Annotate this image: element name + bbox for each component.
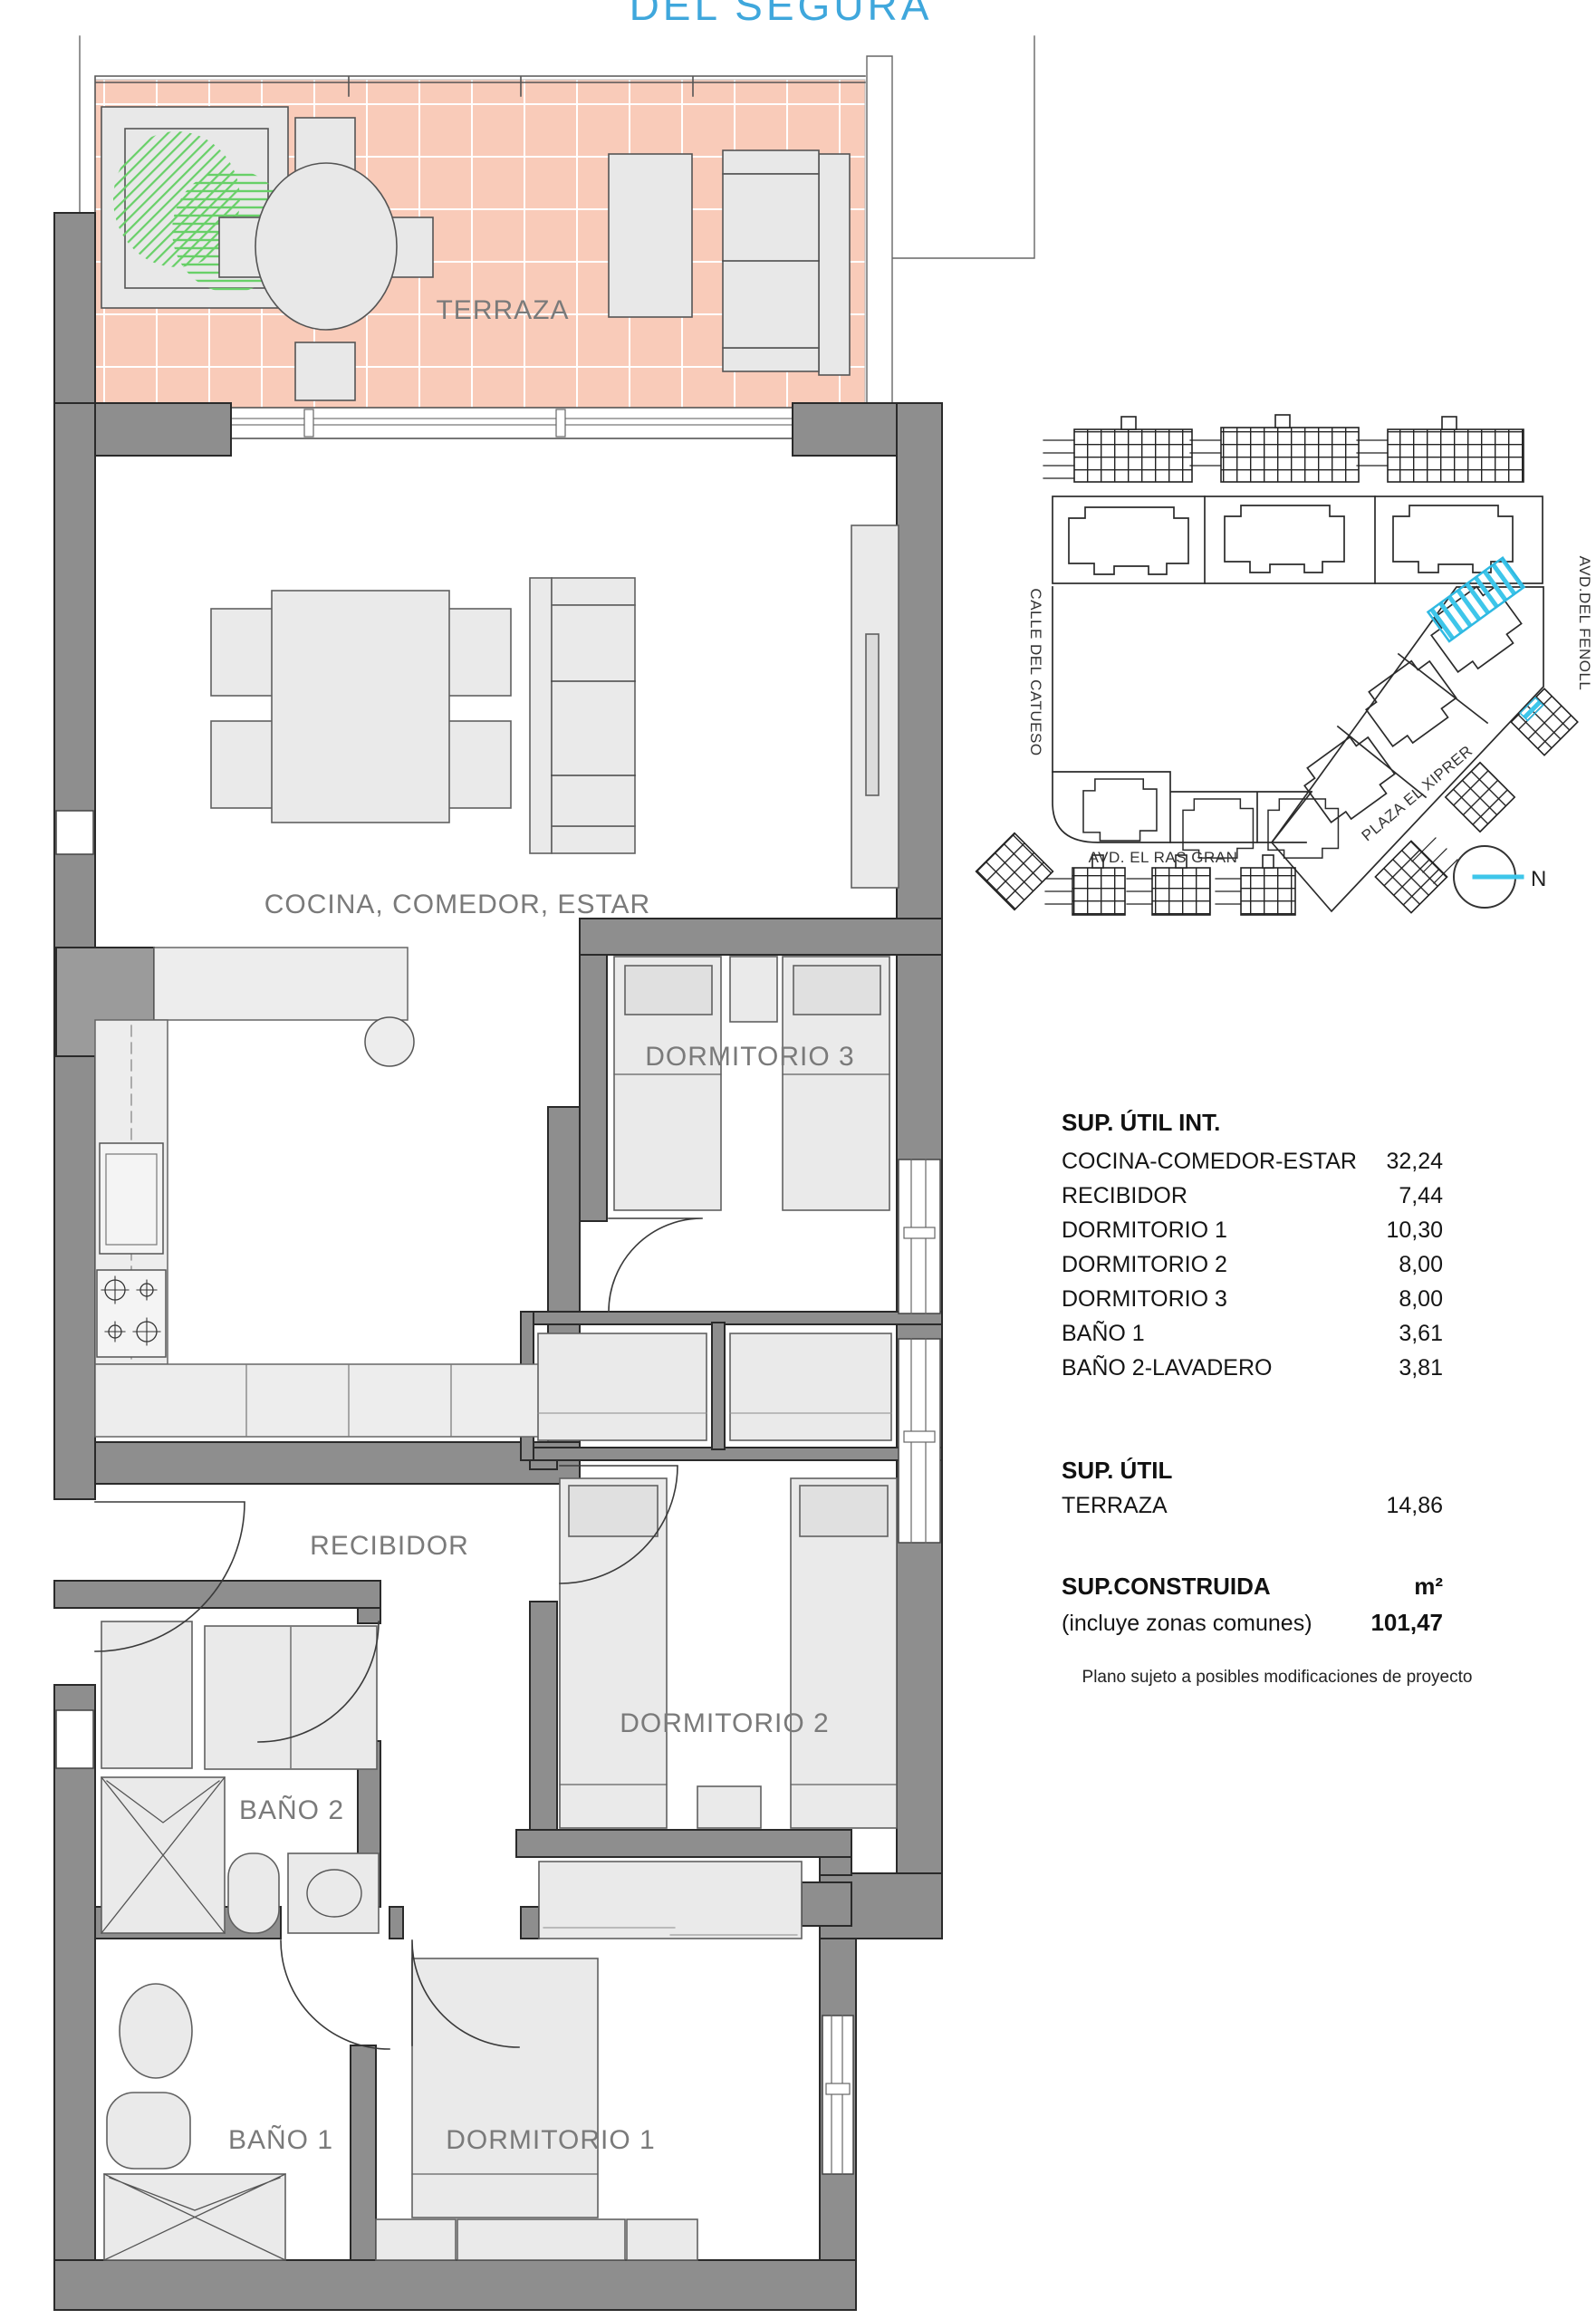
row-value: 8,00 [1399,1286,1443,1312]
chair [447,609,511,696]
pillow [625,966,712,1015]
pillow [793,966,880,1015]
wardrobe [538,1333,707,1440]
window-dorm1 [822,2016,853,2174]
window-dorm3 [899,1159,940,1313]
site-parcel-band [1053,496,1543,583]
toilet-icon [228,1853,279,1933]
wall-window [56,1710,93,1768]
table-row-construida: SUP.CONSTRUIDA m² (incluye zonas comunes… [1062,1573,1443,1636]
stove-icon [97,1270,166,1357]
site-lot [1053,587,1338,858]
table-row: DORMITORIO 3 8,00 [1062,1286,1443,1312]
table-row: DORMITORIO 1 10,30 [1062,1217,1443,1243]
area-table: SUP. ÚTIL INT. COCINA-COMEDOR-ESTAR 32,2… [1062,1109,1472,1687]
row-label: BAÑO 1 [1062,1320,1145,1346]
room-label-recibidor: RECIBIDOR [310,1531,469,1561]
bench [457,2219,625,2260]
page-title: DEL SEGURA [630,0,933,29]
toilet-icon [107,2093,190,2169]
row-label: BAÑO 2-LAVADERO [1062,1354,1272,1381]
table-row: DORMITORIO 2 8,00 [1062,1252,1443,1277]
chair [447,721,511,808]
row-value: 14,86 [1386,1493,1443,1518]
row-label: COCINA-COMEDOR-ESTAR [1062,1149,1357,1174]
row-label: RECIBIDOR [1062,1183,1187,1208]
dining-table [272,591,449,823]
room-label-bano2: BAÑO 2 [239,1795,344,1825]
row-value: 3,61 [1399,1321,1443,1346]
bench [376,2219,456,2260]
oven-icon [100,1143,163,1254]
table-row: TERRAZA 14,86 [1062,1493,1443,1518]
room-label-dormitorio2: DORMITORIO 2 [620,1708,829,1738]
tv-icon [866,634,879,795]
round-table [255,163,397,330]
window-dorm2 [899,1339,940,1543]
table-row: BAÑO 1 3,61 [1062,1320,1443,1346]
row-label: DORMITORIO 1 [1062,1217,1227,1243]
table-heading-util: SUP. ÚTIL [1062,1457,1172,1484]
row-label: DORMITORIO 2 [1062,1252,1227,1277]
nightstand [730,957,777,1022]
site-plan: CALLE DEL CATUESO AVD.DEL FENOLL PLAZA E… [976,415,1593,915]
row-label: DORMITORIO 3 [1062,1286,1227,1312]
room-label-bano1: BAÑO 1 [228,2124,333,2155]
sofa [530,578,635,853]
room-label-dormitorio1: DORMITORIO 1 [446,2125,655,2155]
room-label-cocina: COCINA, COMEDOR, ESTAR [264,890,650,919]
washer-icon [101,1621,192,1768]
row-value: 10,30 [1386,1217,1443,1243]
street-label-right: AVD.DEL FENOLL [1576,556,1593,691]
kitchen-counter-bottom [95,1364,548,1437]
nightstand [697,1786,761,1828]
street-label-bottom: AVD. EL RAS GRAN [1089,849,1238,866]
vanity [288,1853,379,1933]
unit-label: m² [1414,1573,1443,1600]
basin-icon [120,1984,192,2078]
row-note: (incluye zonas comunes) [1062,1611,1312,1636]
terrace-sofa [723,150,850,375]
row-value: 7,44 [1399,1183,1443,1208]
site-buildings-top [1074,415,1524,482]
floor-plan-drawing: DEL SEGURA [0,0,1596,2319]
row-label: TERRAZA [1062,1493,1168,1518]
row-value: 32,24 [1386,1149,1443,1174]
sun-lounger [609,154,692,317]
row-value: 3,81 [1399,1355,1443,1381]
terrace: TERRAZA [80,36,1034,408]
north-label: N [1531,867,1546,891]
sink-icon [365,1017,414,1066]
pillow [800,1486,888,1536]
room-label-dormitorio3: DORMITORIO 3 [645,1042,854,1072]
wall-window [56,811,93,854]
row-value: 8,00 [1399,1252,1443,1277]
disclaimer: Plano sujeto a posibles modificaciones d… [1082,1668,1473,1687]
chair [295,342,355,400]
double-bed [412,1958,598,2218]
row-label: SUP.CONSTRUIDA [1062,1573,1271,1600]
apartment-plan: TERRAZA [54,36,1034,2310]
pillow [569,1486,658,1536]
street-label-left: CALLE DEL CATUESO [1027,588,1044,755]
bench [627,2219,697,2260]
chair [211,721,274,808]
table-row: BAÑO 2-LAVADERO 3,81 [1062,1354,1443,1381]
chair [211,609,274,696]
plan-sheet: DEL SEGURA [0,0,1596,2319]
table-heading-util-int: SUP. ÚTIL INT. [1062,1109,1220,1136]
wardrobe [730,1333,891,1440]
kitchen-counter [154,948,408,1020]
row-value: 101,47 [1370,1609,1443,1636]
tv-sideboard [851,525,899,888]
highlighted-unit [1428,558,1524,641]
room-label-terraza: TERRAZA [436,295,569,325]
wardrobe [539,1862,802,1939]
table-row: COCINA-COMEDOR-ESTAR 32,24 [1062,1149,1443,1174]
north-arrow-icon: N [1454,846,1546,908]
table-row: RECIBIDOR 7,44 [1062,1183,1443,1208]
